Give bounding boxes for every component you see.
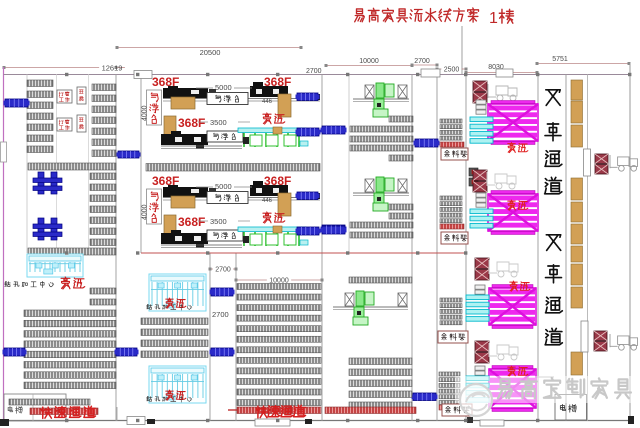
svg-text:20500: 20500	[200, 48, 221, 57]
svg-text:5000: 5000	[215, 83, 232, 92]
svg-text:2700: 2700	[306, 68, 322, 75]
svg-text:12619: 12619	[102, 63, 123, 72]
svg-text:4000: 4000	[142, 105, 149, 121]
svg-text:2700: 2700	[414, 58, 430, 65]
svg-text:4000: 4000	[142, 204, 149, 220]
svg-text:3500: 3500	[210, 217, 227, 226]
svg-text:1: 1	[489, 10, 498, 27]
svg-text:2500: 2500	[444, 67, 460, 74]
svg-text:446: 446	[262, 99, 273, 105]
svg-text:368F: 368F	[178, 116, 205, 130]
svg-text:3500: 3500	[210, 118, 227, 127]
svg-text:5751: 5751	[552, 56, 568, 63]
svg-text:2700: 2700	[212, 310, 229, 319]
svg-text:446: 446	[262, 198, 273, 204]
svg-text:10000: 10000	[359, 58, 379, 65]
svg-text:2700: 2700	[215, 267, 231, 274]
svg-text:368F: 368F	[178, 215, 205, 229]
svg-text:5000: 5000	[215, 182, 232, 191]
